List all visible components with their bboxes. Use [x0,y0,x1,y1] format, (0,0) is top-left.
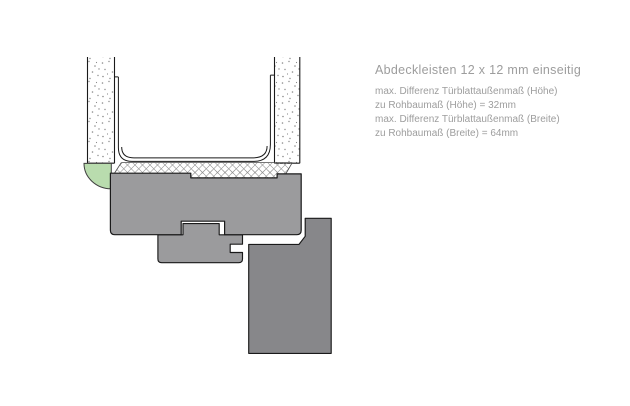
wall-right [275,57,300,163]
diagram-title: Abdeckleisten 12 x 12 mm einseitig [375,63,615,77]
steel-frame-profile [115,75,275,161]
annotation-block: Abdeckleisten 12 x 12 mm einseitig max. … [375,63,615,141]
profile-top-caps [115,75,275,77]
door-leaf [249,218,332,353]
profile-inner-edge [122,146,267,158]
annotation-line-1: max. Differenz Türblattaußenmaß (Höhe) [375,85,615,99]
wall-left [88,57,115,163]
door-frame-section-diagram [0,0,630,406]
annotation-line-3: max. Differenz Türblattaußenmaß (Breite) [375,113,615,127]
drawing-canvas: Abdeckleisten 12 x 12 mm einseitig max. … [0,0,630,406]
annotation-line-2: zu Rohbaumaß (Höhe) = 32mm [375,99,615,113]
annotation-line-4: zu Rohbaumaß (Breite) = 64mm [375,127,615,141]
seal-green [84,163,111,188]
profile-outer-edge [118,75,270,161]
